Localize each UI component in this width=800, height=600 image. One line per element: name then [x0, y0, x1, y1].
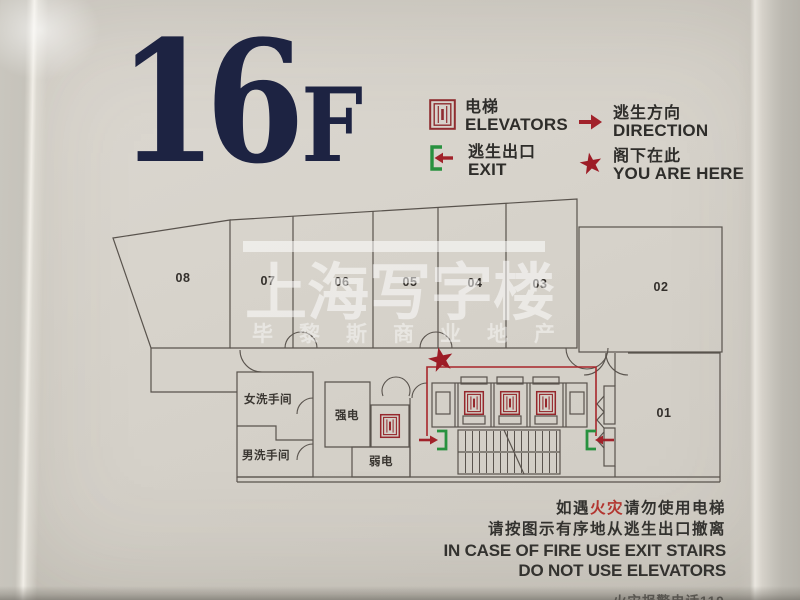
fire-warning-line4: DO NOT USE ELEVATORS: [518, 562, 726, 579]
fire-phone-partial-text: 火灾报警电话119: [613, 590, 725, 600]
fire-warning-line1-pre: 如遇: [556, 500, 590, 517]
fire-warning-line1: 如遇火灾请勿使用电梯: [556, 501, 726, 517]
weak-electric-label: 弱电: [369, 454, 393, 468]
unit-label-08: 08: [176, 271, 191, 285]
men-restroom-label: 男洗手间: [242, 448, 290, 462]
watermark-subtitle: 毕黎斯商业地产: [252, 322, 581, 346]
floor-evacuation-sign-photo: 16 F 电梯 ELEVATORS 逃生出口 EXIT: [0, 0, 800, 600]
watermark: 上海写字楼 毕黎斯商业地产: [243, 241, 581, 346]
strong-electric-label: 强电: [335, 408, 359, 422]
watermark-bar: [243, 241, 545, 252]
fire-warning-line2: 请按图示有序地从逃生出口撤离: [488, 522, 726, 538]
unit-label-02: 02: [654, 280, 669, 294]
evacuation-route: [426, 345, 596, 436]
fire-warning-line3: IN CASE OF FIRE USE EXIT STAIRS: [443, 542, 726, 559]
fire-warning-line1-post: 请勿使用电梯: [624, 500, 726, 517]
stairs: [458, 430, 560, 474]
unit-label-01: 01: [657, 406, 672, 420]
women-restroom-label: 女洗手间: [244, 392, 292, 406]
fire-warning: 如遇火灾请勿使用电梯 请按图示有序地从逃生出口撤离 IN CASE OF FIR…: [443, 501, 726, 582]
fire-warning-line1-highlight: 火灾: [590, 500, 624, 517]
you-are-here-marker: [426, 345, 455, 373]
watermark-title: 上海写字楼: [245, 259, 555, 328]
